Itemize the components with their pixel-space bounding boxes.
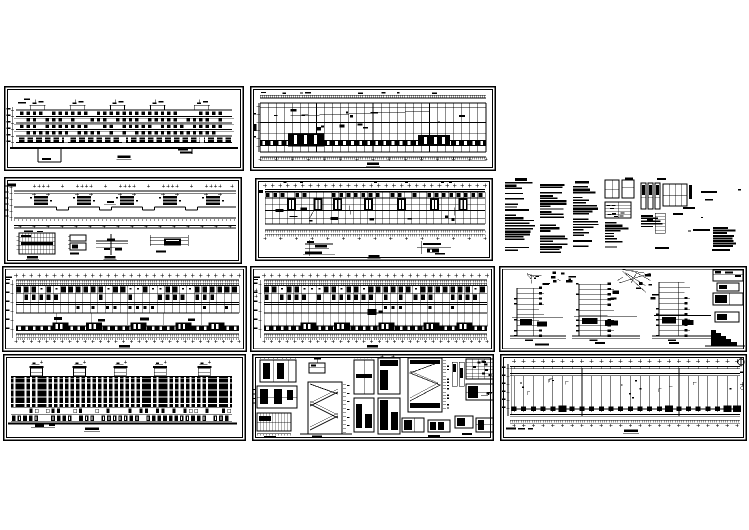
rear-elevation-sheet xyxy=(3,354,246,441)
front-elevation-sheet-drawing xyxy=(4,86,244,171)
stair-section-details-sheet-drawing xyxy=(499,266,747,352)
roof-plan-with-details-sheet-drawing xyxy=(4,177,242,264)
standard-floor-plan-sheet-drawing xyxy=(2,266,247,352)
stair-plan-details-sheet-drawing xyxy=(252,354,494,441)
stair-plan-details-sheet xyxy=(252,354,494,441)
roof-plan-with-details-sheet xyxy=(4,177,242,264)
front-elevation-sheet xyxy=(4,86,244,171)
long-roof-plan-sheet xyxy=(500,354,747,441)
stair-section-details-sheet xyxy=(499,266,747,352)
design-notes-text-block xyxy=(505,177,747,265)
long-roof-plan-sheet-drawing xyxy=(500,354,747,441)
floor-plan-sheet-drawing xyxy=(255,178,493,261)
floor-plan-sheet xyxy=(255,178,493,261)
standard-floor-plan-sheet xyxy=(2,266,247,352)
second-floor-plan-sheet-drawing xyxy=(250,266,495,352)
upper-floor-plan-sheet xyxy=(250,86,496,171)
cad-preview-page xyxy=(0,0,749,530)
design-notes-text-block-drawing xyxy=(505,177,747,265)
second-floor-plan-sheet xyxy=(250,266,495,352)
upper-floor-plan-sheet-drawing xyxy=(250,86,496,171)
rear-elevation-sheet-drawing xyxy=(3,354,246,441)
